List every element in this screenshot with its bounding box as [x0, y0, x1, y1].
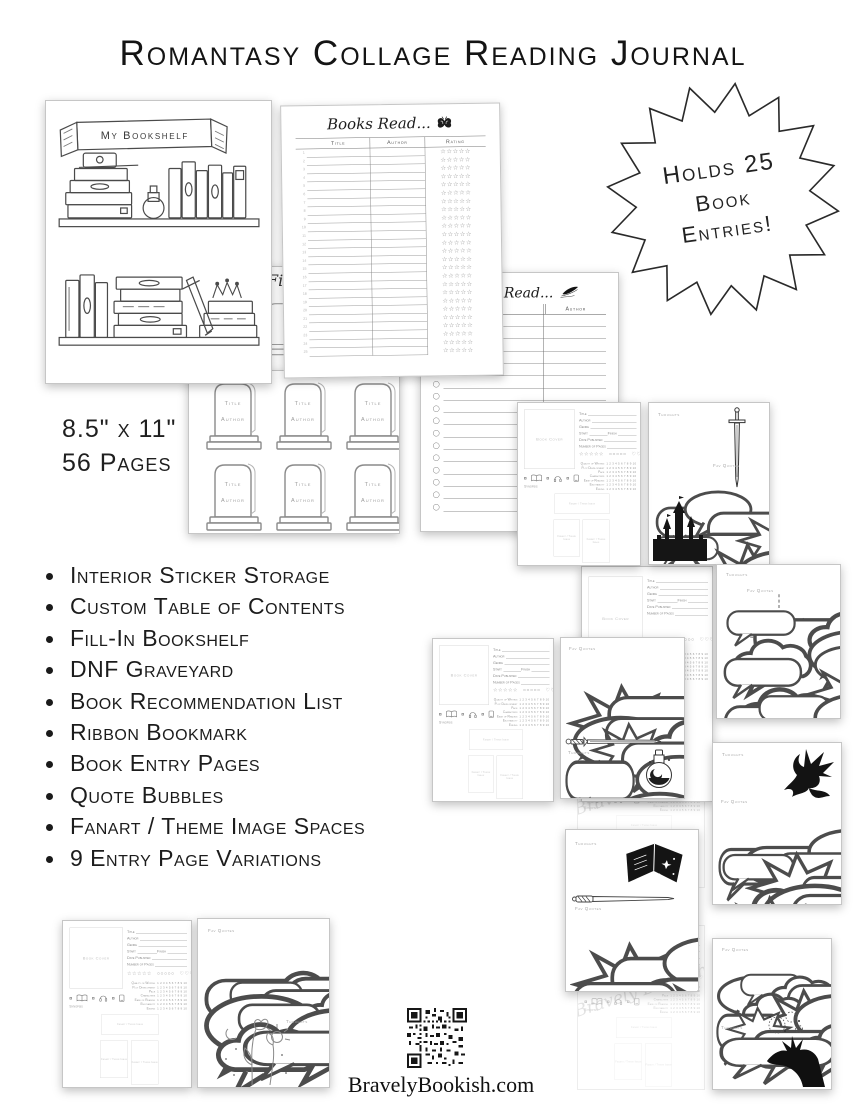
author-cell-line [372, 346, 427, 356]
entry-fields: Title Author Genre StartFinish Date Publ… [493, 645, 549, 684]
row-number [297, 265, 308, 273]
physical-book-icon [591, 998, 602, 1006]
checkbox-circle-icon [433, 418, 440, 425]
rating-category-row: Ending 1 2 3 4 5 6 7 8 9 10 [618, 1011, 700, 1015]
rating-category-row: Ending 1 2 3 4 5 6 7 8 9 10 [471, 723, 549, 727]
field-date-published-label: Date Published [647, 604, 670, 609]
rating-scale: 1 2 3 4 5 6 7 8 9 10 [519, 724, 549, 727]
rating-category-label: Pace [149, 990, 155, 994]
badge-line-3: Entries! [680, 209, 775, 251]
feature-item: 9 Entry Page Variations [42, 843, 462, 874]
rating-category-label: Quality of Writing [581, 462, 605, 466]
row-number [298, 307, 309, 315]
rating-scale: 1 2 3 4 5 6 7 8 9 10 [670, 805, 700, 808]
checkbox-icon [482, 713, 485, 716]
image-box-label: Fanart / Theme Image [583, 538, 609, 544]
gravestone: Title Author [205, 460, 263, 534]
image-box-label: Fanart / Theme Image [468, 771, 493, 777]
rating-scale: 1 2 3 4 5 6 7 8 9 10 [606, 475, 636, 478]
headphones-icon [554, 474, 563, 482]
rating-scale: 1 2 3 4 5 6 7 8 9 10 [606, 467, 636, 470]
fav-quotes-label: Fav Quotes [569, 646, 596, 651]
preview-quotes-hand-page: Fav Quotes Thoughts [712, 938, 832, 1090]
field-genre-label: Genre [493, 660, 503, 665]
row-number [297, 257, 308, 265]
preview-quotes-sword-potion-page: Fav Quotes Thoughts [560, 637, 685, 799]
book-cover-box: Book Cover [69, 928, 122, 989]
field-genre-label: Genre [647, 591, 657, 596]
rating-category-label: Plot Development [495, 702, 518, 706]
feature-item: Fill-In Bookshelf [42, 623, 462, 654]
rating-scale: 1 2 3 4 5 6 7 8 9 10 [519, 703, 549, 706]
butterfly-icon [436, 116, 454, 130]
book-entry-template: Book Cover Title Author Genre StartFinis… [63, 921, 191, 1087]
rating-category-label: Ease of Reading [497, 715, 518, 719]
row-number [298, 332, 309, 340]
entry-line [444, 400, 607, 401]
image-box-label: Fanart / Theme Image [117, 1023, 143, 1026]
rating-scale: 1 2 3 4 5 6 7 8 9 10 [606, 484, 636, 487]
book-cover-box: Book Cover [439, 645, 489, 704]
preview-book-entry-page: Book Cover Title Author Genre StartFinis… [432, 638, 554, 802]
entry-fields: Title Author Genre StartFinish Date Publ… [647, 576, 708, 615]
image-box: Fanart / Theme Image [615, 1043, 642, 1080]
gravestone-icon [347, 464, 400, 530]
rating-category-label: Characters [590, 475, 605, 479]
image-box: Fanart / Theme Image [469, 730, 523, 750]
books-read-rows: ☆☆☆☆☆ ☆☆☆☆☆ ☆☆☆☆☆ [296, 147, 489, 357]
hearts-rating: ♡♡♡♡♡ [180, 971, 192, 977]
quote-bubbles [206, 973, 329, 1087]
quote-bubbles [725, 611, 840, 718]
preview-quotes-spellbook-page: Thoughts Fav Quotes [565, 829, 699, 992]
checkbox-icon [584, 1000, 587, 1003]
field-date-published-label: Date Published [493, 673, 516, 678]
field-title-label: Title [127, 930, 135, 935]
spellbook-icon [623, 841, 683, 888]
feature-item: DNF Graveyard [42, 654, 462, 685]
book-cover-label: Book Cover [536, 437, 563, 442]
feature-item: Book Recommendation List [42, 686, 462, 717]
image-box-label: Fanart / Theme Image [569, 502, 595, 505]
gravestone-author-label: Author [221, 417, 245, 423]
row-number [298, 282, 309, 290]
rating-scale: 1 2 3 4 5 6 7 8 9 10 [606, 471, 636, 474]
synopsis-label: Synopsis [439, 721, 452, 725]
rating-star-groups: ☆☆☆☆☆ ○○○○○ ♡♡♡♡♡ [579, 452, 641, 458]
image-box-label: Fanart / Theme Image [615, 1060, 641, 1063]
synopsis-label: Synopsis [584, 806, 597, 810]
physical-book-icon [76, 994, 87, 1002]
row-number [296, 182, 307, 190]
quote-bubbles [720, 830, 841, 904]
rating-scale: 1 2 3 4 5 6 7 8 9 10 [670, 1007, 700, 1010]
book-entry-template: Book Cover Title Author Genre StartFinis… [518, 403, 640, 565]
field-author-label: Author [647, 585, 658, 590]
rating-category-label: Pace [511, 707, 517, 711]
row-number [296, 166, 307, 174]
ereader-icon [119, 994, 125, 1002]
rating-scale: 1 2 3 4 5 6 7 8 9 10 [670, 1011, 700, 1014]
gravestone-title-label: Title [295, 401, 312, 407]
ereader-icon [489, 711, 495, 719]
image-box: Fanart / Theme Image [131, 1041, 159, 1085]
field-author-label: Author [493, 654, 504, 659]
book-cover-box: Book Cover [524, 409, 575, 468]
rating-category-label: Ending [147, 1007, 156, 1011]
rating-category-label: Enjoyability [503, 719, 518, 723]
books-read-header: Books Read... [281, 110, 499, 136]
field-pages-label: Number of Pages [127, 962, 154, 967]
field-start-label: Start [127, 949, 136, 954]
author-column-header: Author [545, 304, 606, 314]
row-number [298, 323, 309, 331]
format-icons [524, 474, 579, 482]
field-start-label: Start [579, 431, 588, 436]
preview-books-read-page: Books Read... Title Author Rating [280, 102, 504, 378]
row-number [297, 232, 308, 240]
gravestone-title-label: Title [365, 482, 382, 488]
gravestone-title-label: Title [295, 482, 312, 488]
checkbox-circle-icon [433, 430, 440, 437]
rating-scale: 1 2 3 4 5 6 7 8 9 10 [519, 711, 549, 714]
row-number [297, 207, 308, 215]
row-number [297, 274, 308, 282]
ereader-icon [634, 998, 640, 1006]
image-box-label: Fanart / Theme Image [132, 1061, 158, 1064]
quote-bubbles [574, 939, 698, 991]
physical-book-icon [531, 475, 542, 483]
field-line [155, 960, 187, 967]
checkbox-circle-icon [433, 393, 440, 400]
checkbox-circle-icon [433, 442, 440, 449]
rating-scale: 1 2 3 4 5 6 7 8 9 10 [157, 995, 187, 998]
rating-scale: 1 2 3 4 5 6 7 8 9 10 [157, 1007, 187, 1010]
field-genre-label: Genre [127, 943, 137, 948]
thoughts-label: Thoughts [658, 412, 680, 417]
checkbox-icon [547, 477, 550, 480]
rating-scale: 1 2 3 4 5 6 7 8 9 10 [606, 488, 636, 491]
rating-category-label: Characters [141, 994, 156, 998]
rating-scale: 1 2 3 4 5 6 7 8 9 10 [519, 707, 549, 710]
feature-item: Book Entry Pages [42, 748, 462, 779]
rating-category-label: Ease of Reading [584, 479, 605, 483]
thoughts-label: Thoughts [722, 752, 744, 757]
row-number [297, 224, 308, 232]
headphones-icon [614, 998, 623, 1006]
field-author-label: Author [579, 418, 590, 423]
row-number [298, 315, 309, 323]
rating-scale: 1 2 3 4 5 6 7 8 9 10 [606, 463, 636, 466]
image-box-label: Fanart / Theme Image [645, 1064, 671, 1067]
row-number [297, 216, 308, 224]
gravestone: Title Author [345, 379, 400, 456]
books-read-heading: Books Read... [327, 114, 431, 133]
gravestone: Title Author [275, 460, 333, 534]
hearts-rating: ♡♡♡♡♡ [546, 688, 554, 694]
rating-category-label: Ending [660, 809, 669, 813]
image-box: Fanart / Theme Image [101, 1014, 158, 1035]
image-box: Fanart / Theme Image [468, 756, 494, 793]
entry-fields: Title Author Genre StartFinish Date Publ… [127, 928, 187, 967]
circles-rating: ○○○○○ [523, 688, 541, 694]
gravestone-grid: Title Author Title Author Title Author [205, 379, 383, 525]
hearts-rating: ♡♡♡♡♡ [632, 452, 641, 458]
checkbox-icon [462, 713, 465, 716]
to-be-read-row [433, 376, 606, 388]
headphones-icon [99, 994, 108, 1002]
gravestone: Title Author [345, 460, 400, 534]
gravestone-author-label: Author [291, 417, 315, 423]
bookshelf-illustration: My Bookshelf [46, 101, 271, 383]
title-column-header: Title [307, 140, 370, 147]
image-box: Fanart / Theme Image [583, 520, 610, 563]
checkbox-circle-icon [433, 381, 440, 388]
rating-star-groups: ☆☆☆☆☆ ○○○○○ ♡♡♡♡♡ [493, 688, 554, 694]
preview-book-entry-page: Book Cover Title Author Genre StartFinis… [62, 920, 192, 1088]
rating-category-label: Characters [503, 711, 518, 715]
rating-category-label: Quality of Writing [494, 698, 518, 702]
row-number [297, 240, 308, 248]
page-count-text: 56 Pages [62, 446, 176, 480]
rating-scale: 1 2 3 4 5 6 7 8 9 10 [606, 479, 636, 482]
feature-item: Interior Sticker Storage [42, 560, 462, 591]
rating-category-label: Ease of Reading [135, 998, 156, 1002]
field-line [521, 677, 549, 684]
rating-category-label: Enjoyability [140, 1003, 155, 1007]
preview-quotes-castle-page: Thoughts Fav Quotes [648, 402, 770, 565]
rating-category-label: Enjoyability [654, 1006, 669, 1010]
feature-list: Interior Sticker StorageCustom Table of … [42, 560, 462, 874]
rating-scale: 1 2 3 4 5 6 7 8 9 10 [157, 982, 187, 985]
field-title-label: Title [579, 411, 587, 416]
book-cover-label: Book Cover [602, 617, 629, 622]
circles-rating: ○○○○○ [157, 971, 175, 977]
field-pages-label: Number of Pages [579, 444, 606, 449]
checkbox-circle-icon [433, 504, 440, 511]
checkbox-circle-icon [433, 405, 440, 412]
fav-quotes-label: Fav Quotes [721, 799, 748, 804]
page-title: Romantasy Collage Reading Journal [0, 34, 866, 74]
gravestone-author-label: Author [291, 498, 315, 504]
gravestone: Title Author [205, 379, 263, 456]
rating-scale: 1 2 3 4 5 6 7 8 9 10 [157, 999, 187, 1002]
dragon-icon [784, 749, 834, 798]
preview-dnf-graveyard-page: Title Author Title Author Title Author [188, 370, 400, 534]
fav-quotes-label: Fav Quotes [713, 463, 740, 468]
gravestone-title-label: Title [225, 482, 242, 488]
bookshelf-banner-label: My Bookshelf [101, 130, 189, 142]
rating-scale: 1 2 3 4 5 6 7 8 9 10 [670, 999, 700, 1002]
synopsis-label: Synopsis [584, 1008, 597, 1012]
feature-item: Quote Bubbles [42, 780, 462, 811]
image-box: Fanart / Theme Image [555, 494, 610, 514]
image-box: Fanart / Theme Image [645, 1043, 672, 1086]
gravestone: Title Author [275, 379, 333, 456]
image-box-label: Fanart / Theme Image [497, 774, 522, 780]
field-line [607, 441, 636, 448]
image-box-label: Fanart / Theme Image [554, 535, 580, 541]
row-number [298, 299, 309, 307]
books-read-table: Title Author Rating ☆☆☆☆☆ ☆☆☆ [296, 136, 489, 357]
rating-category-label: Enjoyability [590, 483, 605, 487]
rating-column-header: Rating [425, 136, 486, 147]
row-number [297, 249, 308, 257]
synopsis-label: Synopsis [524, 485, 537, 489]
row-number [298, 348, 309, 356]
fav-quotes-label: Fav Quotes [722, 947, 749, 952]
thoughts-label: Thoughts [726, 572, 748, 577]
product-specs: 8.5" x 11" 56 Pages [62, 412, 176, 480]
field-start-label: Start [493, 667, 502, 672]
gravestone-icon [207, 464, 261, 530]
image-box: Fanart / Theme Image [616, 1017, 672, 1038]
book-cover-label: Book Cover [451, 673, 478, 678]
feature-item: Fanart / Theme Image Spaces [42, 811, 462, 842]
checkbox-icon [567, 477, 570, 480]
row-number [296, 157, 307, 165]
field-title-label: Title [493, 647, 501, 652]
preview-bookshelf-page: My Bookshelf [45, 100, 272, 384]
image-box: Fanart / Theme Image [100, 1041, 128, 1079]
checkbox-icon [69, 997, 72, 1000]
rating-category-row: Ending 1 2 3 4 5 6 7 8 9 10 [104, 1007, 187, 1011]
rating-category-label: Ending [660, 1011, 669, 1015]
badge-text: Holds 25 Book Entries! [589, 65, 858, 334]
stars-rating: ☆☆☆☆☆ [493, 688, 518, 694]
website-url: BravelyBookish.com [300, 1072, 582, 1098]
dimensions-text: 8.5" x 11" [62, 412, 176, 446]
circles-rating: ○○○○○ [609, 452, 627, 458]
title-cell-line [309, 347, 372, 357]
preview-quotes-dragon-page: Thoughts Fav Quotes [712, 742, 842, 905]
image-box-label: Fanart / Theme Image [631, 824, 657, 827]
ereader-icon [574, 475, 580, 483]
starburst-badge: Holds 25 Book Entries! [604, 80, 842, 318]
rating-category-row: Ending 1 2 3 4 5 6 7 8 9 10 [618, 809, 700, 813]
field-line [675, 608, 708, 615]
rating-scale: 1 2 3 4 5 6 7 8 9 10 [157, 990, 187, 993]
field-start-label: Start [647, 598, 656, 603]
rating-scale: 1 2 3 4 5 6 7 8 9 10 [519, 715, 549, 718]
checkbox-circle-icon [433, 479, 440, 486]
books-read-row: ☆☆☆☆☆ [298, 346, 488, 357]
rating-category-label: Pace [598, 471, 604, 475]
entry-fields: Title Author Genre StartFinish Date Publ… [579, 409, 636, 448]
to-be-read-row [433, 388, 606, 400]
fav-quotes-label: Fav Quotes [575, 906, 602, 911]
checkbox-circle-icon [433, 467, 440, 474]
headphones-icon [469, 710, 478, 718]
qr-code [407, 1008, 467, 1068]
checkbox-icon [92, 997, 95, 1000]
rating-category-label: Ending [509, 723, 518, 727]
checkbox-circle-icon [433, 491, 440, 498]
preview-quotes-floral-page: Fav Quotes [197, 918, 330, 1088]
gravestone-icon [277, 464, 331, 530]
checkbox-icon [627, 1000, 630, 1003]
rating-scale: 1 2 3 4 5 6 7 8 9 10 [157, 1003, 187, 1006]
feature-item: Custom Table of Contents [42, 591, 462, 622]
gravestone-author-label: Author [361, 417, 385, 423]
rating-category-label: Ending [596, 487, 605, 491]
hearts-rating: ♡♡♡♡♡ [700, 637, 713, 643]
rating-scale: 1 2 3 4 5 6 7 8 9 10 [519, 720, 549, 723]
image-box: Fanart / Theme Image [553, 520, 580, 557]
row-number [296, 174, 307, 182]
field-pages-label: Number of Pages [647, 611, 674, 616]
rating-scale: 1 2 3 4 5 6 7 8 9 10 [519, 699, 549, 702]
gravestone-icon [277, 383, 331, 449]
preview-quotes-crystal-page: Thoughts Fav Quotes [716, 564, 841, 719]
image-box-label: Fanart / Theme Image [483, 738, 509, 741]
gravestone-icon [347, 383, 400, 449]
book-entry-template: Book Cover Title Author Genre StartFinis… [433, 639, 553, 801]
product-flyer: Romantasy Collage Reading Journal Holds … [0, 0, 866, 1114]
wand-icon [573, 896, 675, 902]
rating-stars: ☆☆☆☆☆ [427, 346, 488, 355]
row-number [296, 199, 307, 207]
physical-book-icon [446, 711, 457, 719]
gravestone-title-label: Title [365, 401, 382, 407]
rating-category-label: Characters [654, 998, 669, 1002]
entry-line [444, 388, 607, 389]
gravestone-author-label: Author [361, 498, 385, 504]
format-icons [584, 998, 639, 1006]
row-number [296, 191, 307, 199]
checkbox-icon [607, 1000, 610, 1003]
format-icons [69, 994, 124, 1002]
rating-category-label: Quality of Writing [131, 982, 155, 986]
rating-category-label: Plot Development [582, 466, 605, 470]
sword-icon [729, 408, 745, 487]
rating-scale: 1 2 3 4 5 6 7 8 9 10 [157, 986, 187, 989]
row-number [298, 340, 309, 348]
row-number [296, 149, 307, 157]
image-box-label: Fanart / Theme Image [631, 1026, 657, 1029]
rating-scale: 1 2 3 4 5 6 7 8 9 10 [670, 994, 700, 997]
field-pages-label: Number of Pages [493, 680, 520, 685]
image-box-label: Fanart / Theme Image [101, 1058, 127, 1061]
fav-quotes-label: Fav Quotes [208, 928, 235, 933]
fav-quotes-label: Fav Quotes [747, 588, 774, 593]
rating-category-row: Ending 1 2 3 4 5 6 7 8 9 10 [557, 487, 636, 491]
rating-scale: 1 2 3 4 5 6 7 8 9 10 [670, 1003, 700, 1006]
gravestone-title-label: Title [225, 401, 242, 407]
stars-rating: ☆☆☆☆☆ [127, 971, 152, 977]
rating-category-label: Plot Development [132, 986, 155, 990]
format-icons [439, 710, 494, 718]
rating-star-groups: ☆☆☆☆☆ ○○○○○ ♡♡♡♡♡ [127, 971, 192, 977]
thoughts-label: Thoughts [286, 1019, 308, 1024]
gravestone-author-label: Author [221, 498, 245, 504]
image-box: Fanart / Theme Image [497, 756, 523, 799]
rating-category-label: Pace [662, 994, 668, 998]
checkbox-icon [439, 713, 442, 716]
row-number [298, 290, 309, 298]
rating-category-label: Ease of Reading [648, 1002, 669, 1006]
rating-category-label: Enjoyability [654, 804, 669, 808]
field-title-label: Title [647, 578, 655, 583]
checkbox-icon [524, 477, 527, 480]
rating-scale: 1 2 3 4 5 6 7 8 9 10 [670, 809, 700, 812]
field-date-published-label: Date Published [579, 437, 602, 442]
stars-rating: ☆☆☆☆☆ [579, 452, 604, 458]
thoughts-label: Thoughts [568, 750, 590, 755]
synopsis-label: Synopsis [69, 1005, 82, 1009]
field-genre-label: Genre [579, 424, 589, 429]
checkbox-icon [112, 997, 115, 1000]
